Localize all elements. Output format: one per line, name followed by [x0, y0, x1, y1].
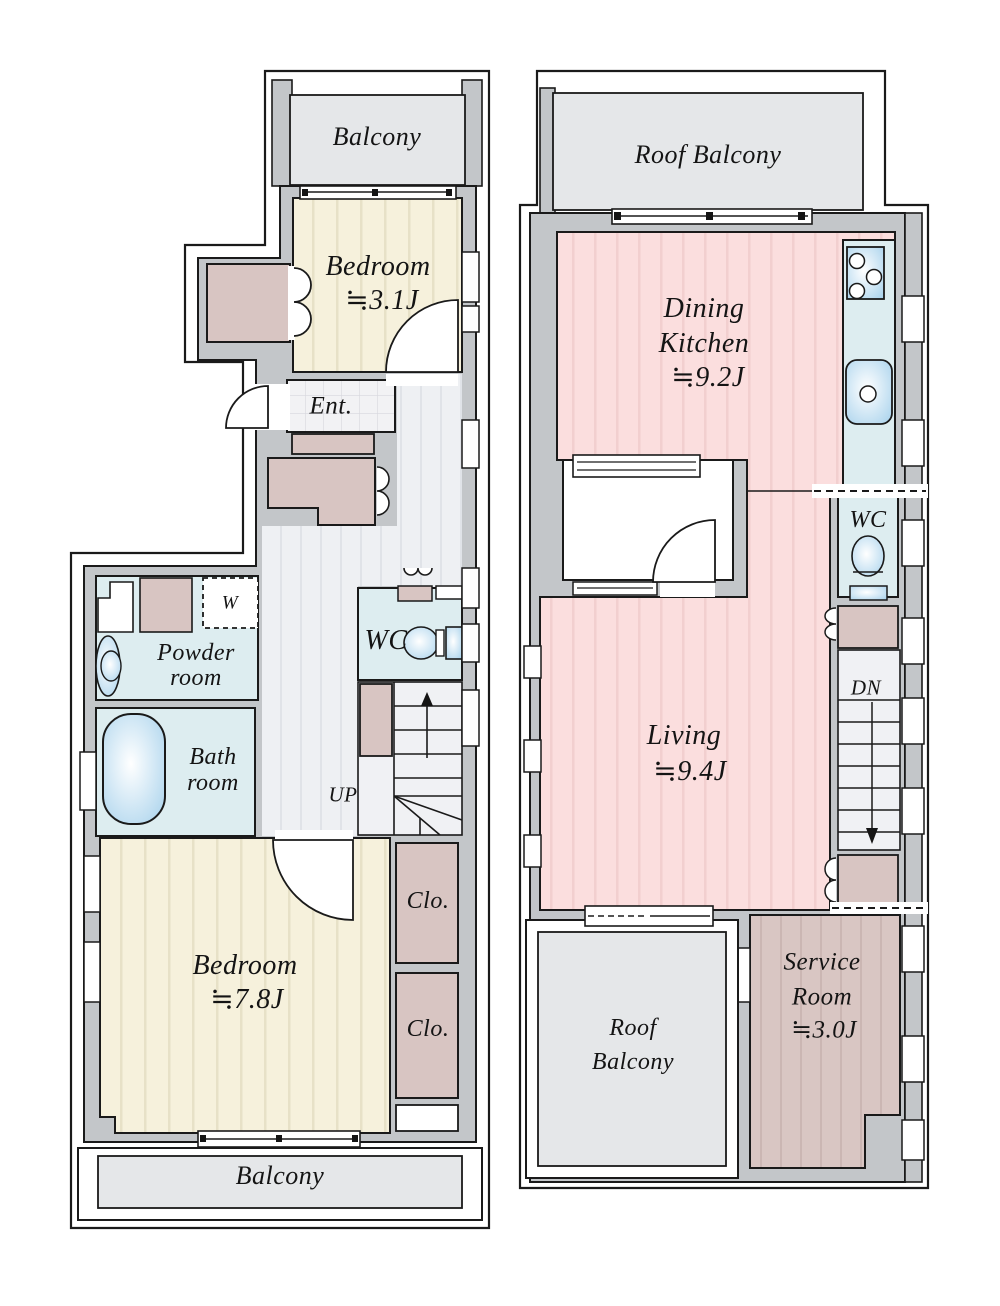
label-dn: DN [851, 678, 881, 699]
label-balcony-bottom: Balcony [236, 1163, 325, 1189]
kitchen-counter [843, 240, 895, 488]
right-wall-columns [902, 213, 924, 1182]
dk-top-window [612, 209, 812, 224]
label-living: Living [647, 722, 722, 750]
label-wc-right: WC [850, 508, 887, 532]
powder-cabinet [140, 578, 192, 632]
stair-cabinet [360, 684, 392, 756]
toilet-left-icon [404, 627, 438, 659]
closet-bump [207, 264, 290, 342]
label-powder-2: room [170, 666, 222, 690]
label-bath-1: Bath [189, 745, 236, 769]
label-washer: W [222, 594, 238, 613]
label-service-1: Service [783, 950, 860, 975]
label-bedroom-small-area: ≒3.1J [345, 287, 418, 315]
living-bottom-window [585, 906, 713, 926]
label-roof-balcony-bottom-1: Roof [609, 1016, 656, 1040]
label-service-2: Room [792, 985, 852, 1010]
toilet-right-icon [852, 536, 884, 576]
bathtub-icon [103, 714, 165, 824]
label-roof-balcony-bottom-2: Balcony [592, 1050, 674, 1074]
closet-by-wc [838, 606, 898, 648]
closet-by-stairs [838, 855, 898, 903]
label-balcony-top: Balcony [333, 124, 422, 150]
wc-shelf [398, 586, 432, 601]
label-dk-1: Dining [664, 295, 745, 323]
label-closet-upper: Clo. [407, 889, 450, 913]
balcony-top-window [300, 186, 456, 199]
floorplan-canvas: Balcony Bedroom ≒3.1J Ent. W Powder room… [0, 0, 1000, 1306]
right-plan [520, 71, 928, 1188]
label-living-area: ≒9.4J [653, 758, 726, 786]
label-powder-1: Powder [157, 641, 235, 665]
label-bedroom-small: Bedroom [325, 253, 430, 281]
label-dk-area: ≒9.2J [671, 364, 744, 392]
floorplan-drawing [0, 0, 1000, 1306]
label-service-area: ≒3.0J [791, 1018, 857, 1043]
shoe-cabinet [292, 434, 374, 454]
label-closet-lower: Clo. [407, 1017, 450, 1041]
left-plan [71, 71, 489, 1228]
label-up: UP [329, 785, 358, 806]
label-dk-2: Kitchen [659, 330, 750, 358]
label-wc-left: WC [365, 627, 408, 655]
balcony-bottom-window [198, 1131, 360, 1147]
label-bedroom-large-area: ≒7.8J [210, 986, 283, 1014]
label-entrance: Ent. [310, 394, 353, 419]
label-bath-2: room [187, 771, 239, 795]
label-roof-balcony-top: Roof Balcony [635, 142, 782, 168]
dk-living-notch [563, 455, 733, 597]
entrance-door [226, 386, 268, 428]
label-bedroom-large: Bedroom [192, 952, 297, 980]
